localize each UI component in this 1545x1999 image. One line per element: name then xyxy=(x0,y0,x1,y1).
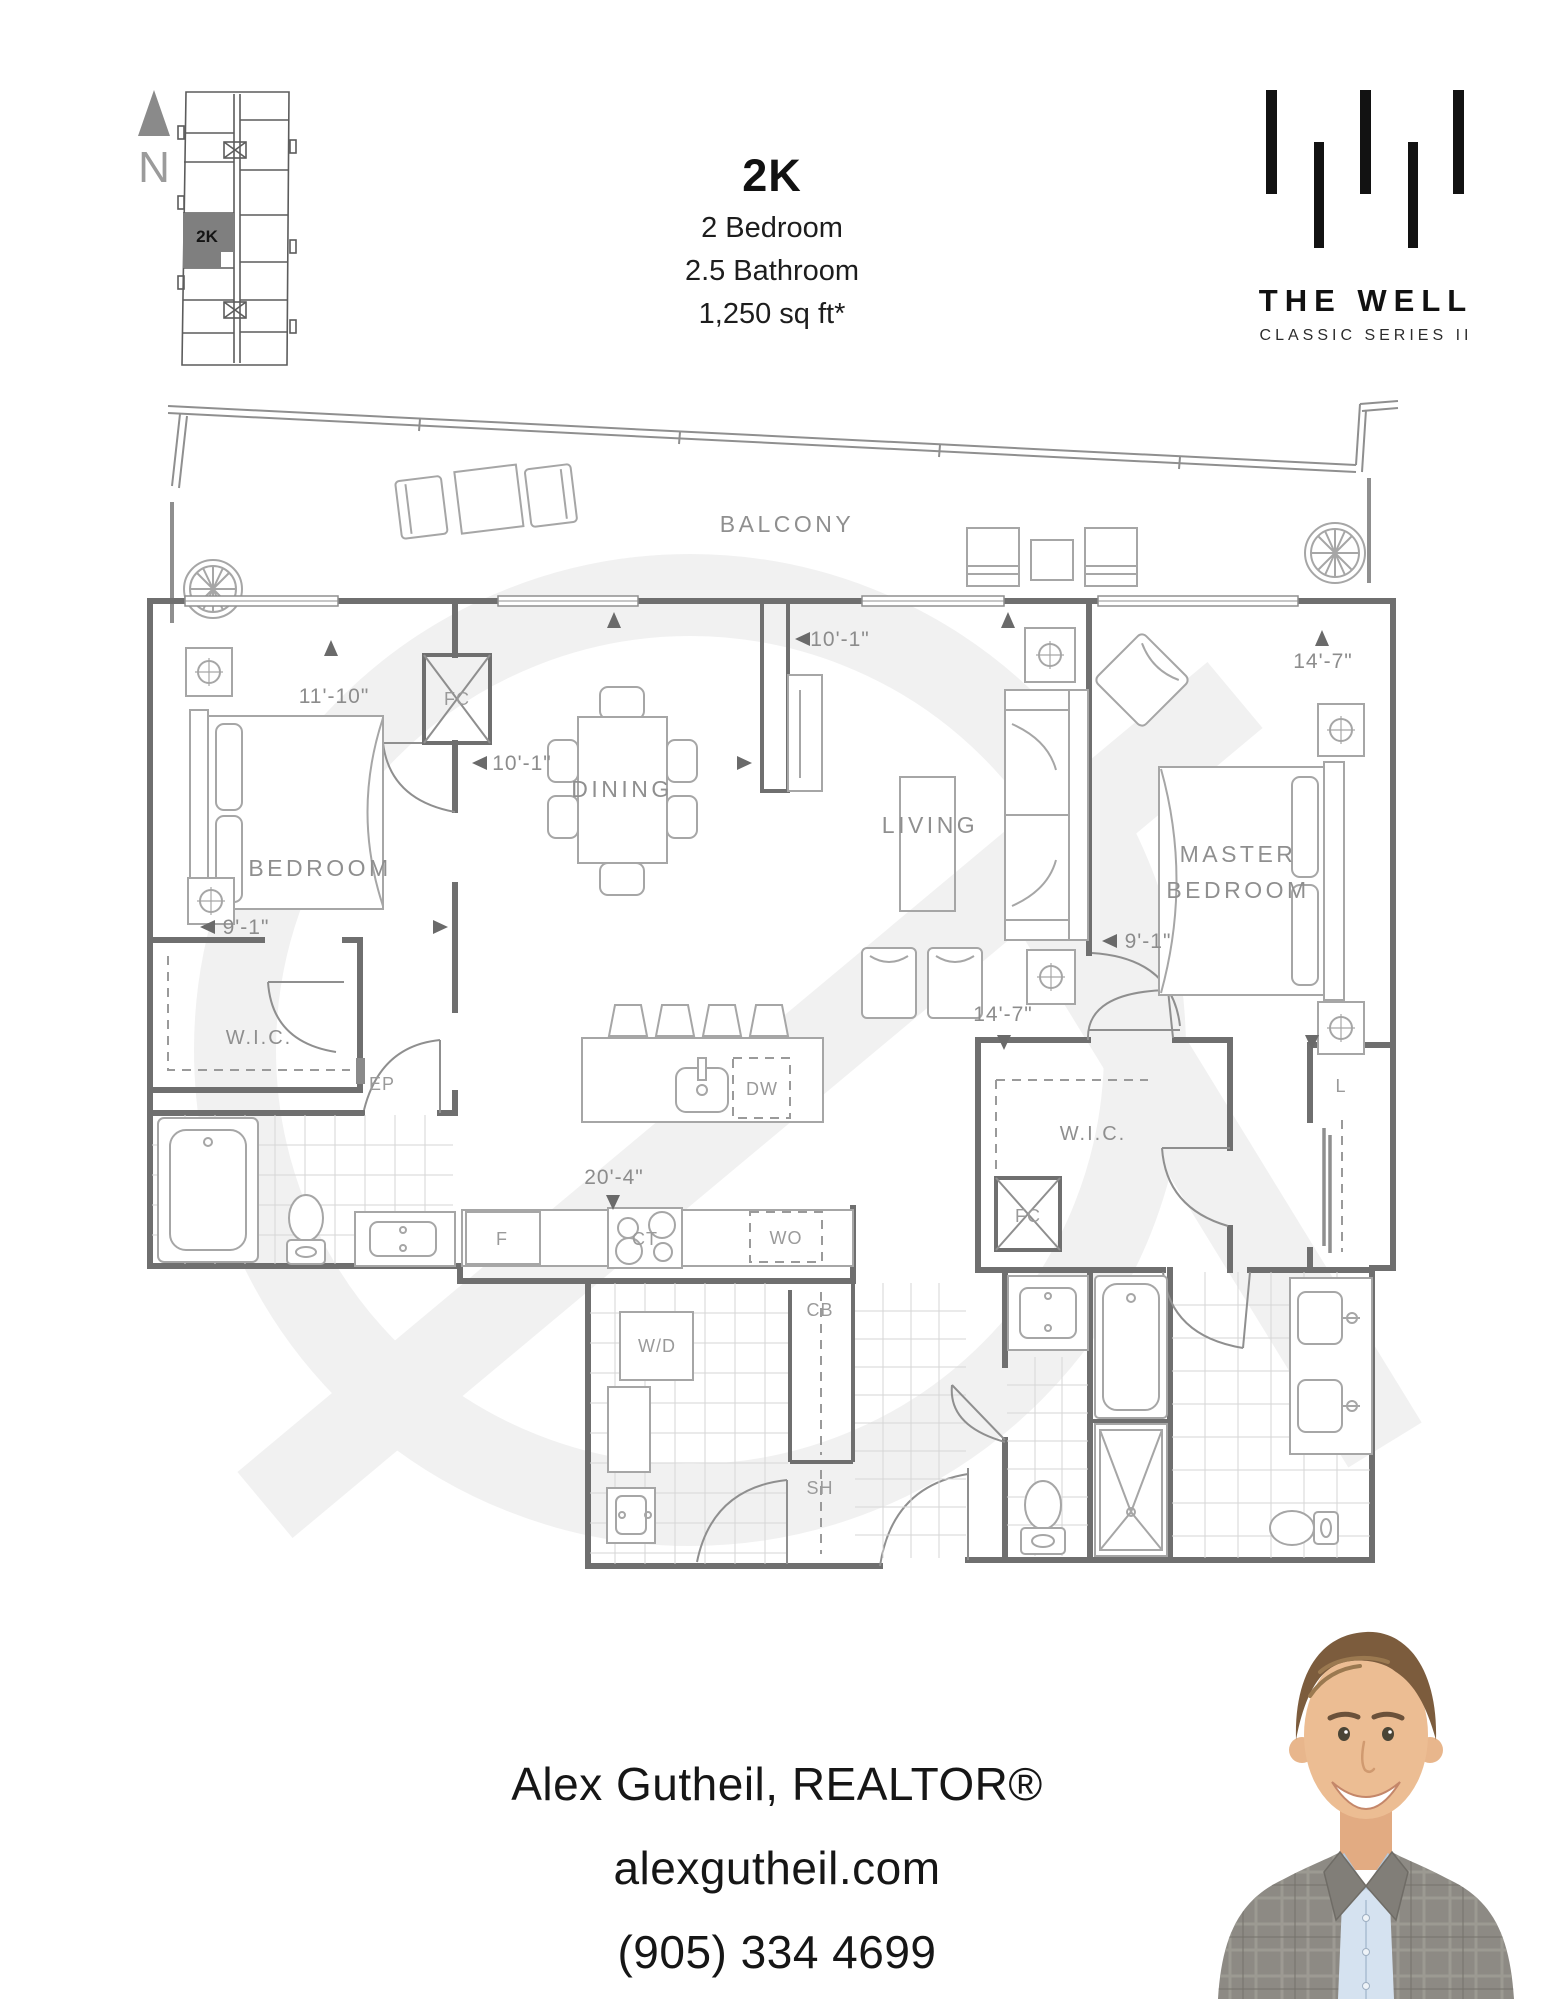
the-well-logo-icon xyxy=(1264,90,1468,250)
fc-chase-master: FC xyxy=(996,1178,1060,1250)
wic-master-label: W.I.C. xyxy=(1060,1123,1126,1145)
fc-master-label: FC xyxy=(1015,1206,1041,1226)
unit-area: 1,250 sq ft* xyxy=(522,298,1022,331)
realtor-headshot xyxy=(1190,1600,1545,1999)
unit-bathrooms: 2.5 Bathroom xyxy=(522,255,1022,288)
brand-name: THE WELL xyxy=(1252,283,1480,319)
electrical-panel xyxy=(356,1058,365,1084)
master-label-line2: BEDROOM xyxy=(1166,877,1309,903)
flyer-page: N 2K xyxy=(0,0,1545,1999)
shelf-label: SH xyxy=(806,1478,833,1498)
realtor-website[interactable]: alexgutheil.com xyxy=(327,1826,1227,1910)
balcony-planter-left xyxy=(184,560,242,618)
balcony-planter-right xyxy=(1305,523,1365,583)
balcony-dining-set xyxy=(395,458,577,543)
dim-dining-width: 10'-1" xyxy=(492,752,552,775)
unit-code: 2K xyxy=(522,150,1022,202)
dim-bedroom-width: 11'-10" xyxy=(299,685,370,708)
bathroom-fixtures xyxy=(158,1118,455,1266)
dim-hall: 14'-7" xyxy=(973,1003,1033,1026)
balcony-label: BALCONY xyxy=(720,511,854,537)
ep-label: EP xyxy=(369,1074,395,1094)
dim-master-depth: 9'-1" xyxy=(1125,930,1172,953)
bedroom-label: BEDROOM xyxy=(248,855,391,881)
cabinet-label: CB xyxy=(806,1300,833,1320)
tub-shower-fixtures xyxy=(1095,1276,1167,1556)
realtor-phone[interactable]: (905) 334 4699 xyxy=(327,1910,1227,1994)
keyplan: N 2K xyxy=(138,90,296,365)
kitchen-stools xyxy=(609,1005,788,1036)
living-label: LIVING xyxy=(882,812,978,838)
wic-bedroom-label: W.I.C. xyxy=(226,1027,292,1049)
cooktop-label: CT xyxy=(632,1229,658,1249)
linen-label: L xyxy=(1335,1076,1346,1096)
fc-top-label: FC xyxy=(444,689,470,709)
dim-kitchen: 20'-4" xyxy=(584,1166,644,1189)
fridge-label: F xyxy=(496,1229,508,1249)
dining-label: DINING xyxy=(571,776,673,802)
balcony-lounge-chairs xyxy=(967,528,1137,586)
master-label-line1: MASTER xyxy=(1180,841,1297,867)
brand-series: CLASSIC SERIES II xyxy=(1252,327,1480,345)
contact-block: Alex Gutheil, REALTOR® alexgutheil.com (… xyxy=(327,1742,1227,1994)
brand-block: THE WELL CLASSIC SERIES II xyxy=(1252,90,1480,345)
dim-bedroom-depth: 9'-1" xyxy=(223,916,270,939)
dishwasher-label: DW xyxy=(746,1079,778,1099)
realtor-name: Alex Gutheil, REALTOR® xyxy=(327,1742,1227,1826)
keyplan-unit-label: 2K xyxy=(196,227,218,246)
linen-sliding-door xyxy=(1324,1128,1330,1253)
unit-title-block: 2K 2 Bedroom 2.5 Bathroom 1,250 sq ft* xyxy=(522,150,1022,331)
unit-bedrooms: 2 Bedroom xyxy=(522,212,1022,245)
dim-master-width: 14'-7" xyxy=(1293,650,1353,673)
north-arrow-icon xyxy=(138,90,170,136)
north-label: N xyxy=(138,143,170,192)
dim-living-width: 10'-1" xyxy=(810,628,870,651)
wall-oven-label: WO xyxy=(770,1228,803,1248)
washer-dryer-label: W/D xyxy=(638,1336,676,1356)
